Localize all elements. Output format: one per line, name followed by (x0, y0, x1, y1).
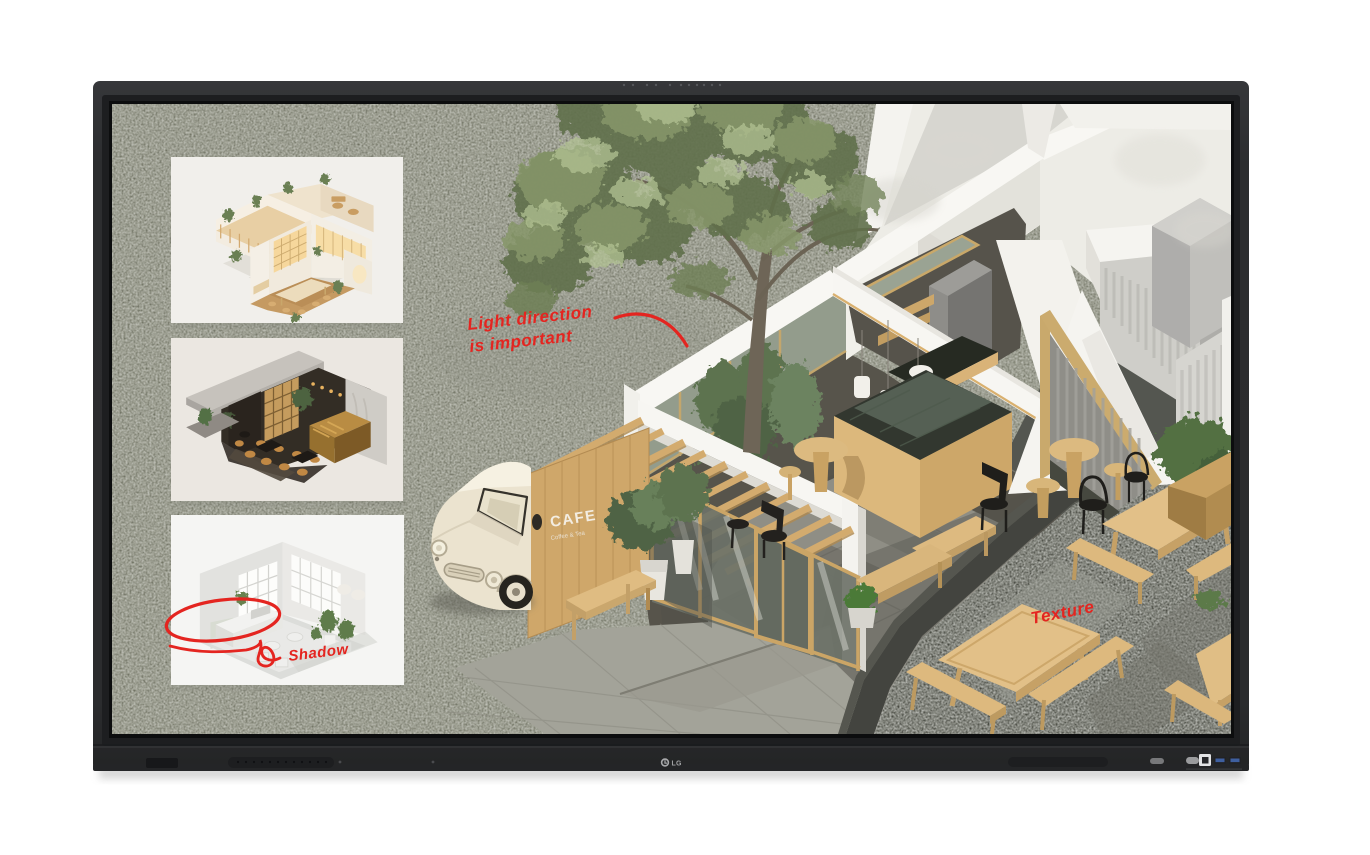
svg-text:LG: LG (672, 761, 682, 768)
